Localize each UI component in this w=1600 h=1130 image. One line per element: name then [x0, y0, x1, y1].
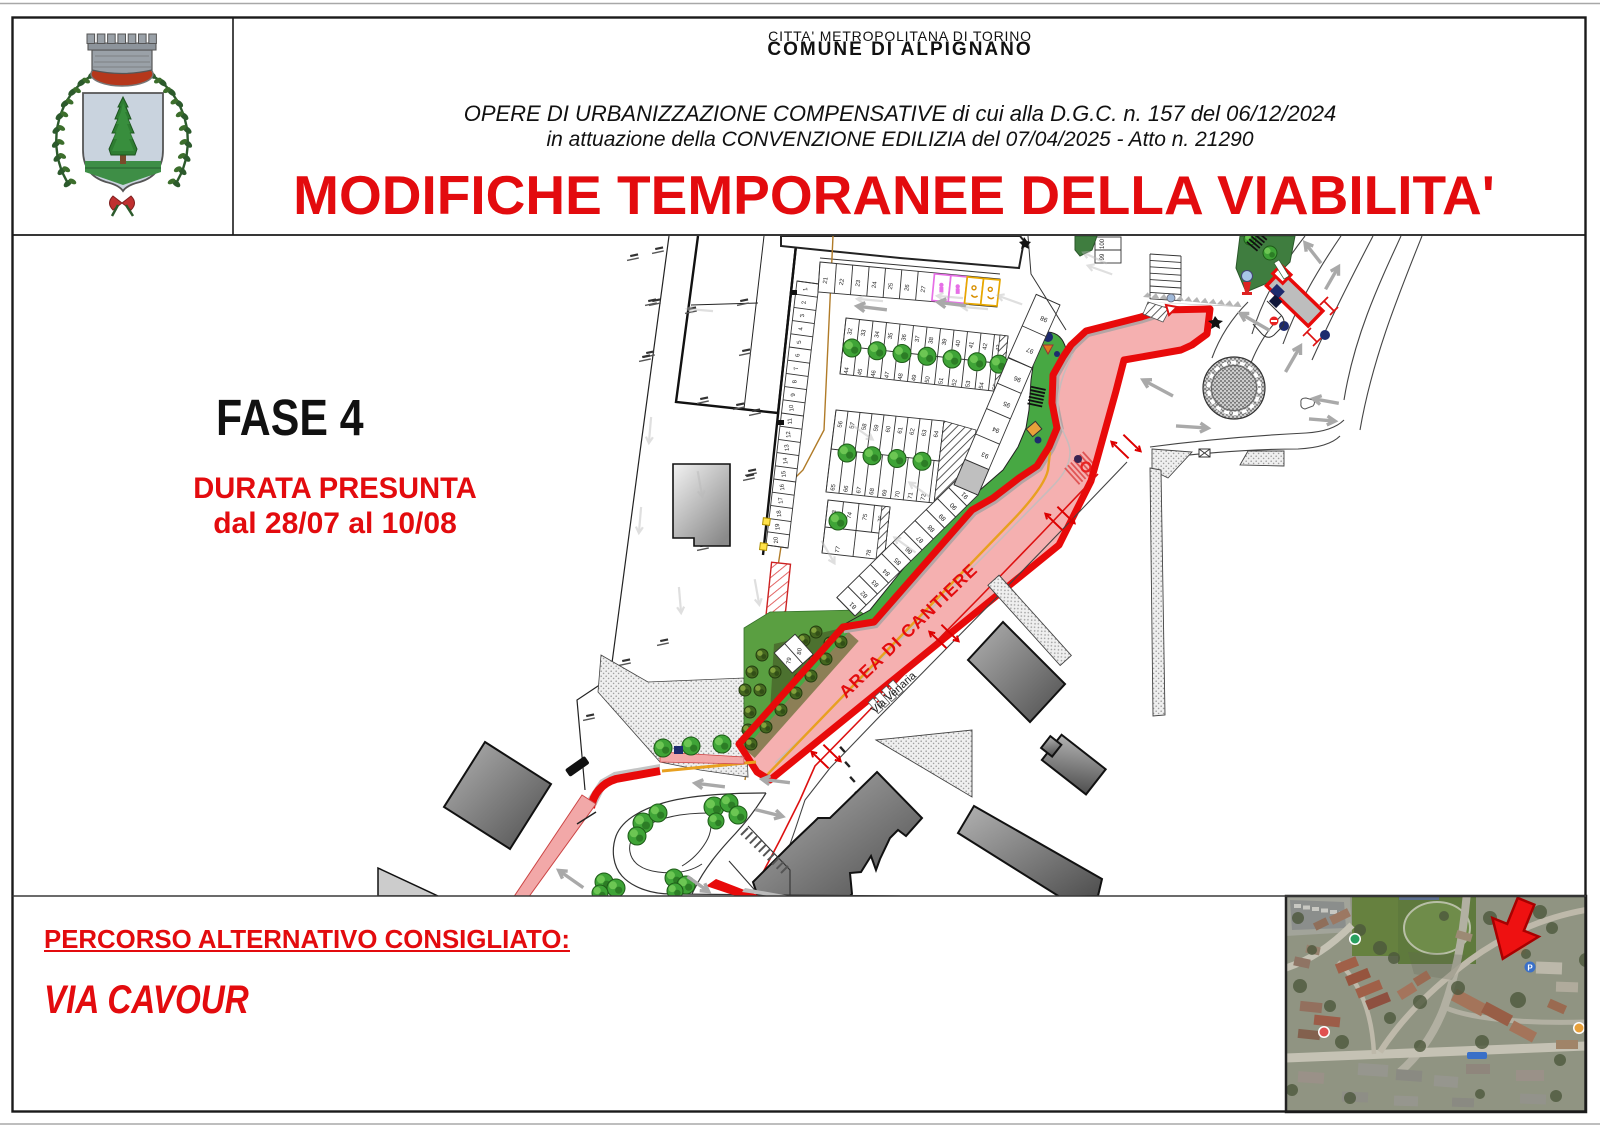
svg-text:13: 13: [784, 443, 791, 451]
svg-text:99: 99: [1100, 253, 1106, 260]
svg-text:80: 80: [797, 647, 804, 655]
svg-text:20: 20: [773, 536, 780, 544]
svg-text:17: 17: [778, 496, 785, 504]
svg-text:16: 16: [780, 483, 787, 491]
svg-text:P: P: [1527, 964, 1533, 973]
svg-text:19: 19: [775, 523, 782, 531]
svg-text:15: 15: [781, 470, 788, 478]
svg-text:100: 100: [1100, 238, 1106, 249]
svg-text:18: 18: [777, 509, 784, 517]
svg-text:10: 10: [789, 404, 796, 412]
svg-text:79: 79: [786, 657, 793, 665]
svg-text:12: 12: [786, 430, 793, 438]
svg-text:14: 14: [783, 457, 790, 465]
